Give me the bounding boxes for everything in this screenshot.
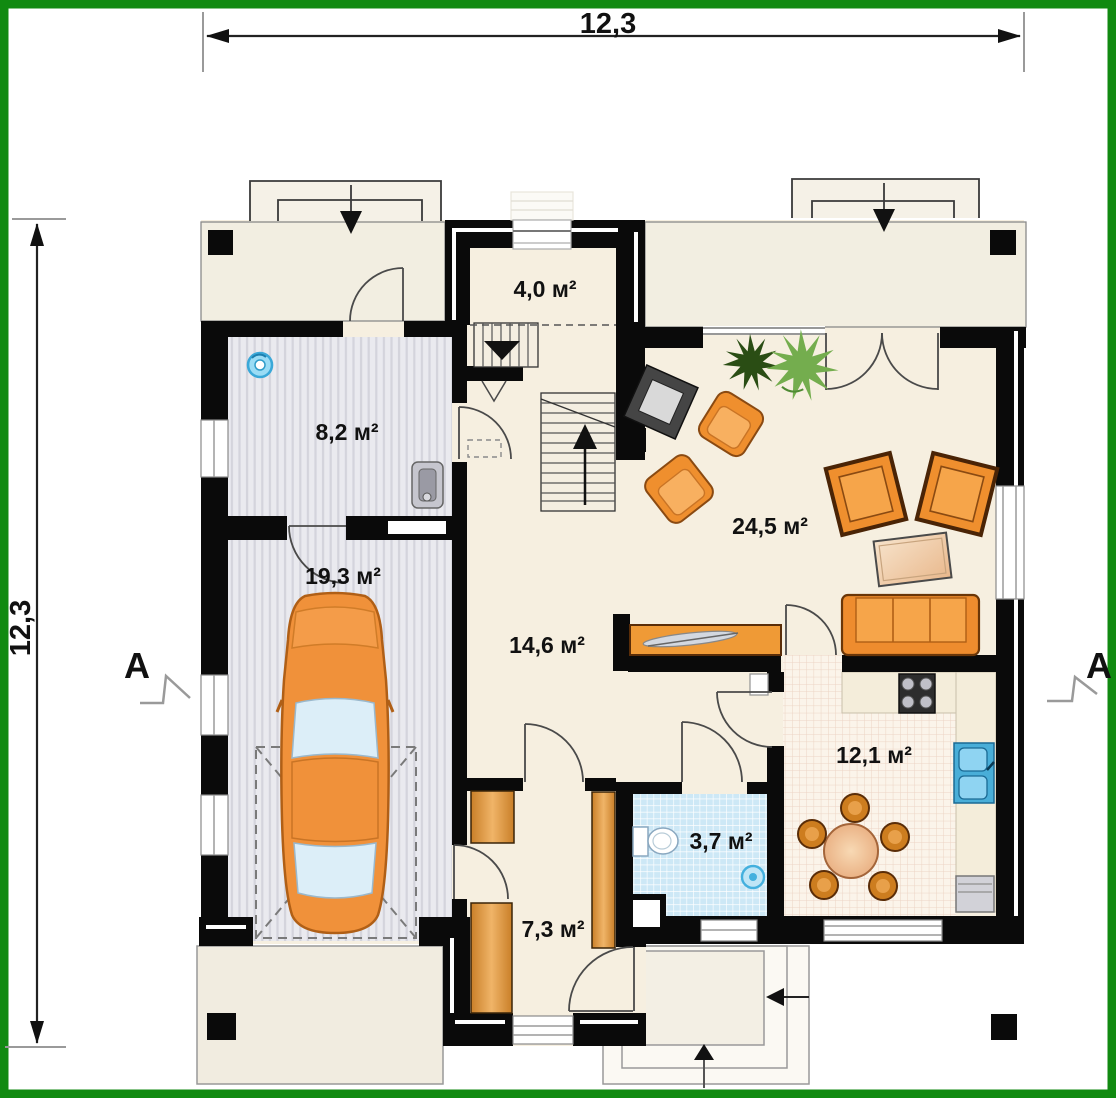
svg-text:3,7 м²: 3,7 м² (689, 828, 752, 854)
svg-text:12,3: 12,3 (580, 8, 636, 40)
svg-text:A: A (124, 645, 150, 686)
svg-text:4,0 м²: 4,0 м² (513, 276, 576, 302)
svg-text:A: A (1086, 645, 1112, 686)
svg-text:7,3 м²: 7,3 м² (521, 916, 584, 942)
svg-text:8,2 м²: 8,2 м² (315, 419, 378, 445)
svg-text:24,5 м²: 24,5 м² (732, 513, 808, 539)
svg-text:14,6 м²: 14,6 м² (509, 632, 585, 658)
svg-text:12,1 м²: 12,1 м² (836, 742, 912, 768)
svg-text:19,3 м²: 19,3 м² (305, 563, 381, 589)
svg-text:12,3: 12,3 (5, 600, 37, 656)
